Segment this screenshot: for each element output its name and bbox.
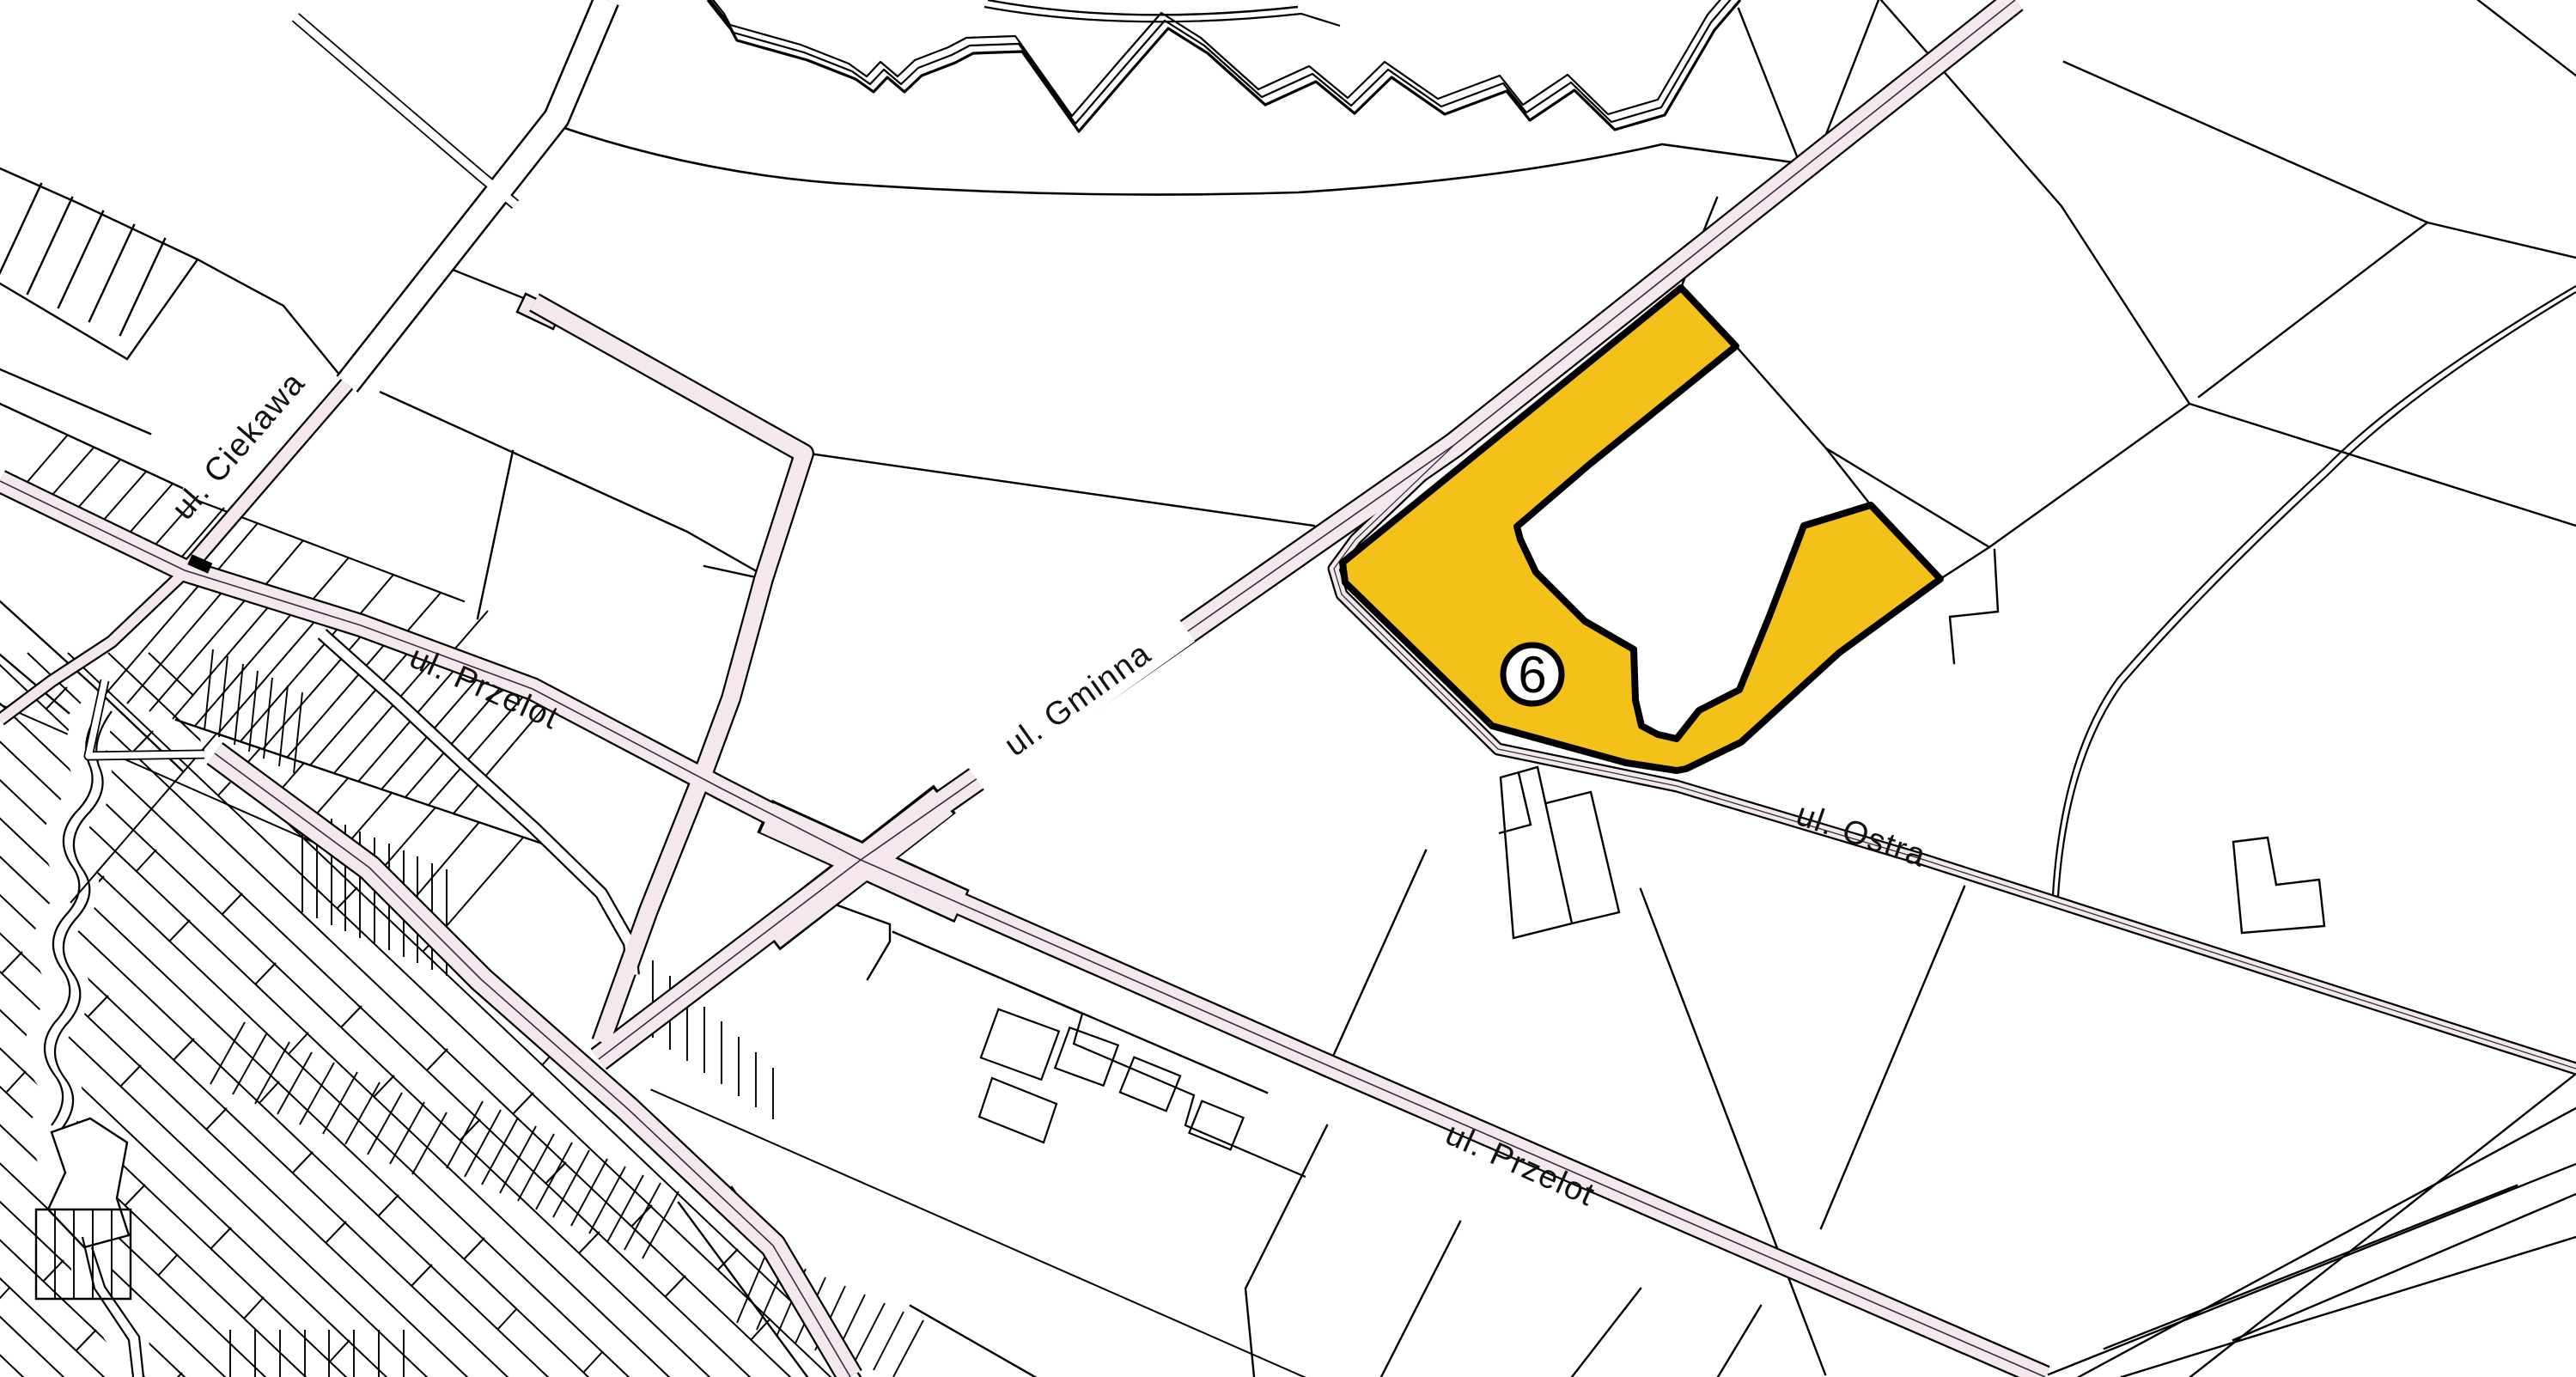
svg-text:6: 6 — [1518, 646, 1546, 704]
